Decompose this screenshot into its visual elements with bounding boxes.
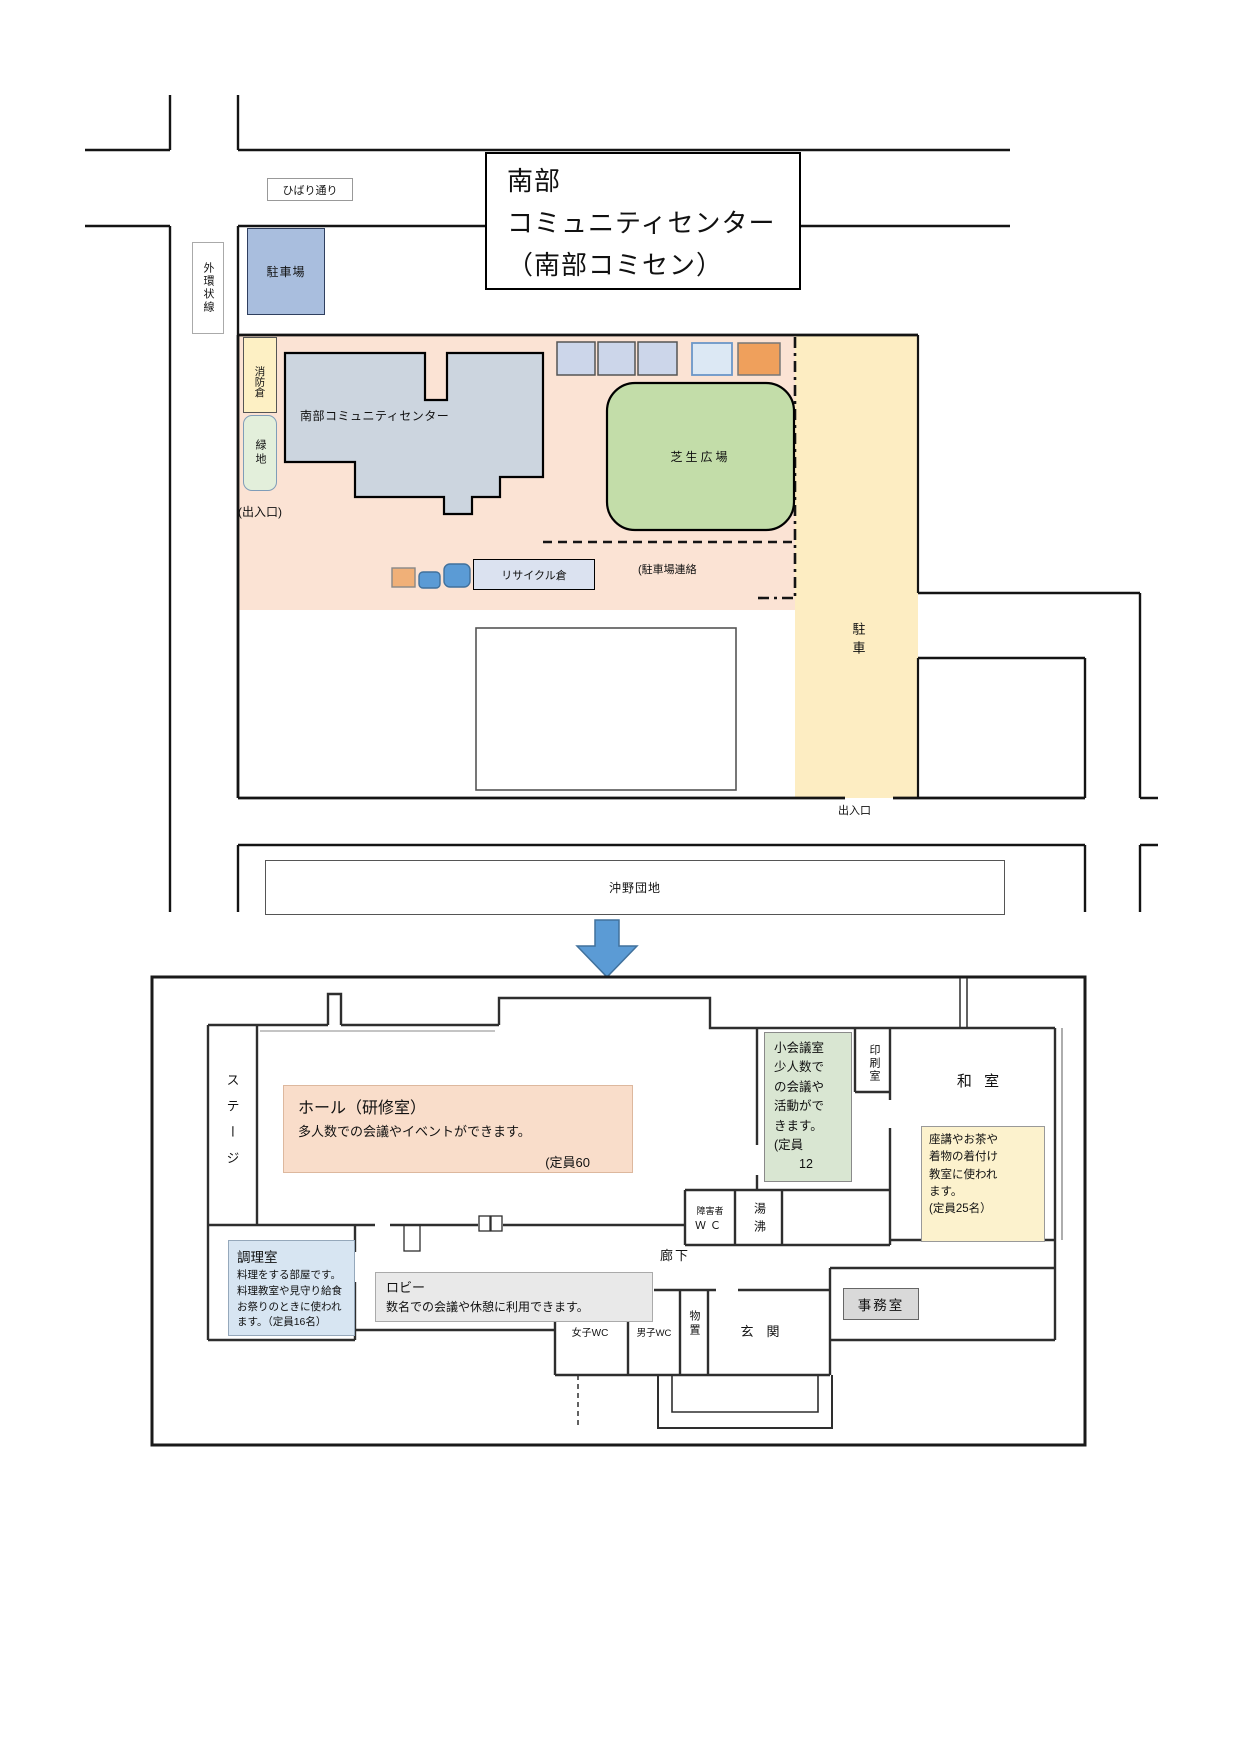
kitchen-desc: 料理をする部屋です。 料理教室や見守り給食 お祭りのときに使われ ます。（定員1… [237,1268,346,1331]
room-womens-wc: 女子WC [556,1322,624,1340]
washitsu-note: 座講やお茶や 着物の着付け 教室に使われ ます。 (定員25名） [921,1126,1045,1242]
recycle-shed: リサイクル倉 [473,559,595,590]
title-line-2: コミュニティセンター [507,202,799,244]
hall-desc: 多人数での会議やイベントができます。 [298,1121,618,1140]
room-hot-water: 湯沸 [740,1194,780,1246]
lobby-note: ロビー 数名での会議や休憩に利用できます。 [375,1272,653,1322]
east-parking-label: 駐車 [843,616,873,666]
small-meeting-room-note: 小会議室 少人数で の会議や 活動がで きます。 (定員 12 [764,1032,852,1182]
hall-capacity: (定員60 [298,1152,618,1171]
room-washitsu: 和 室 [945,1068,1015,1092]
map-title: 南部 コミュニティセンター （南部コミセン） [485,152,801,290]
south-building-outline [476,628,736,790]
small-site-boxes [557,342,780,375]
lobby-desc: 数名での会議や休憩に利用できます。 [386,1298,642,1315]
down-arrow-icon [577,920,637,977]
green-space: 緑地 [243,415,277,491]
room-office: 事務室 [843,1288,919,1320]
okino-danchi-block: 沖野団地 [265,860,1005,915]
room-entrance: 玄 関 [712,1320,808,1340]
north-parking-lot: 駐車場 [247,228,325,315]
south-entrance-label: 出入口 [838,804,871,818]
kitchen-title: 調理室 [237,1246,346,1266]
road-label-outer-ring: 外環状線 [192,242,224,334]
title-line-3: （南部コミセン） [507,244,799,286]
west-entrance-label: (出入口) [238,505,282,521]
fire-storage: 消防倉 [243,337,277,413]
lobby-title: ロビー [386,1277,642,1296]
community-center-map-page: 南部 コミュニティセンター （南部コミセン） ひばり通り 外環状線 駐車場 消防… [0,0,1240,1754]
accessible-wc-line1: 障害者 [695,1204,725,1218]
hall-note: ホール（研修室） 多人数での会議やイベントができます。 (定員60 [283,1085,633,1173]
room-mens-wc: 男子WC [630,1324,678,1340]
lawn-plaza-label: 芝生広場 [607,383,794,530]
hall-title: ホール（研修室） [298,1094,618,1118]
parking-link-label: (駐車場連絡 [638,563,697,577]
kitchen-note: 調理室 料理をする部屋です。 料理教室や見守り給食 お祭りのときに使われ ます。… [228,1240,355,1336]
building-label: 南部コミュニティセンター [300,409,449,425]
room-accessible-wc: 障害者 ＷＣ [687,1196,733,1244]
east-parking-area [795,335,918,798]
room-storage: 物置 [682,1294,706,1354]
accessible-wc-line2: ＷＣ [695,1218,725,1236]
room-print: 印刷室 [858,1034,890,1092]
corridor-label: 廊下 [660,1248,690,1265]
road-label-hibari-street: ひばり通り [267,178,353,201]
title-line-1: 南部 [507,160,799,202]
room-stage: ステージ [212,1062,252,1187]
